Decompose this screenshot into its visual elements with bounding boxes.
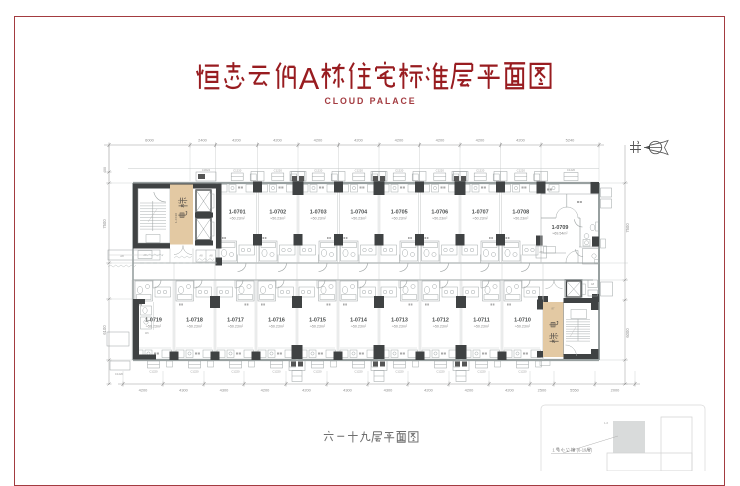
svg-text:4300: 4300 xyxy=(384,388,393,393)
svg-text:C1220: C1220 xyxy=(436,370,445,374)
svg-text:A8: A8 xyxy=(539,250,543,254)
svg-text:1-0717: 1-0717 xyxy=(227,318,244,324)
svg-text:7500: 7500 xyxy=(625,223,630,233)
svg-text:5550: 5550 xyxy=(570,388,579,393)
svg-text:≈50.23m²: ≈50.23m² xyxy=(351,217,367,221)
svg-text:C1220: C1220 xyxy=(190,370,199,374)
svg-text:C1220: C1220 xyxy=(274,169,283,173)
svg-text:4200: 4200 xyxy=(516,138,525,143)
svg-text:4200: 4200 xyxy=(261,388,270,393)
svg-text:C1220: C1220 xyxy=(395,169,404,173)
svg-text:≈50.23m²: ≈50.23m² xyxy=(230,217,246,221)
svg-text:1: 1 xyxy=(552,448,555,453)
svg-text:C1220: C1220 xyxy=(314,169,323,173)
svg-text:2000: 2000 xyxy=(611,388,620,393)
svg-text:4200: 4200 xyxy=(476,138,485,143)
svg-text:A8: A8 xyxy=(199,254,203,258)
svg-text:6000: 6000 xyxy=(145,138,154,143)
svg-text:≈50.23m²: ≈50.23m² xyxy=(310,325,326,329)
svg-text:C1220: C1220 xyxy=(517,169,526,173)
svg-text:≈50.23m²: ≈50.23m² xyxy=(270,217,286,221)
svg-text:≈50.23m²: ≈50.23m² xyxy=(473,217,489,221)
svg-text:C1220: C1220 xyxy=(354,370,363,374)
svg-text:≈50.23m²: ≈50.23m² xyxy=(187,325,203,329)
svg-text:400: 400 xyxy=(103,167,107,173)
svg-text:4300: 4300 xyxy=(343,388,352,393)
svg-text:≈50.23m²: ≈50.23m² xyxy=(351,325,367,329)
svg-text:≈69.54m²: ≈69.54m² xyxy=(552,232,568,236)
svg-text:2400: 2400 xyxy=(198,138,207,143)
svg-text:C3024: C3024 xyxy=(202,168,211,172)
svg-text:): ) xyxy=(591,448,593,453)
svg-text:A8: A8 xyxy=(209,254,213,258)
svg-text:≈50.23m²: ≈50.23m² xyxy=(392,325,408,329)
svg-text:4200: 4200 xyxy=(302,388,311,393)
svg-text:1-0716: 1-0716 xyxy=(268,318,285,324)
svg-text:1-XX10: 1-XX10 xyxy=(174,213,178,223)
svg-text:A8: A8 xyxy=(120,254,124,258)
svg-text:4300: 4300 xyxy=(220,388,229,393)
svg-text:C1220: C1220 xyxy=(149,370,158,374)
svg-text:4200: 4200 xyxy=(505,388,514,393)
svg-text:C1220: C1220 xyxy=(436,169,445,173)
svg-text:1-0707: 1-0707 xyxy=(472,210,489,216)
svg-text:7500: 7500 xyxy=(102,219,107,229)
svg-text:C1220: C1220 xyxy=(518,370,527,374)
svg-text:≈50.23m²: ≈50.23m² xyxy=(432,217,448,221)
svg-text:WC: WC xyxy=(145,332,149,335)
svg-text:≈50.23m²: ≈50.23m² xyxy=(269,325,285,329)
svg-text:1-0715: 1-0715 xyxy=(309,318,326,324)
svg-text:1-0711: 1-0711 xyxy=(473,318,490,324)
svg-text:1-0712: 1-0712 xyxy=(432,318,449,324)
svg-text:C1220: C1220 xyxy=(567,168,576,172)
svg-text:≈50.23m²: ≈50.23m² xyxy=(146,325,162,329)
svg-text:C1220: C1220 xyxy=(313,370,322,374)
svg-text:C1220: C1220 xyxy=(355,169,364,173)
svg-text:C1220: C1220 xyxy=(477,370,486,374)
svg-text:1-0710: 1-0710 xyxy=(514,318,531,324)
svg-text:4200: 4200 xyxy=(436,138,445,143)
svg-text:A: A xyxy=(299,62,320,96)
svg-text:1-0702: 1-0702 xyxy=(269,210,286,216)
svg-text:4200: 4200 xyxy=(139,388,148,393)
svg-text:4200: 4200 xyxy=(273,138,282,143)
svg-text:1-0713: 1-0713 xyxy=(391,318,408,324)
svg-text:C1220: C1220 xyxy=(231,370,240,374)
svg-text:1-0714: 1-0714 xyxy=(350,318,367,324)
svg-text:≈50.23m²: ≈50.23m² xyxy=(228,325,244,329)
svg-text:≈50.23m²: ≈50.23m² xyxy=(311,217,327,221)
svg-text:1-0703: 1-0703 xyxy=(310,210,327,216)
svg-text:C1220: C1220 xyxy=(476,169,485,173)
svg-text:C1220: C1220 xyxy=(395,370,404,374)
svg-text:6000: 6000 xyxy=(625,328,630,338)
svg-text:1-0705: 1-0705 xyxy=(391,210,408,216)
svg-text:≈50.23m²: ≈50.23m² xyxy=(433,325,449,329)
svg-text:4200: 4200 xyxy=(465,388,474,393)
svg-text:1-0706: 1-0706 xyxy=(431,210,448,216)
svg-text:1-0701: 1-0701 xyxy=(229,210,246,216)
svg-text:(6-19: (6-19 xyxy=(577,448,587,453)
svg-text:C1220: C1220 xyxy=(115,372,124,376)
svg-text:6100: 6100 xyxy=(102,325,107,335)
svg-text:1-6: 1-6 xyxy=(604,421,609,425)
svg-text:1-0708: 1-0708 xyxy=(512,210,529,216)
svg-text:2500: 2500 xyxy=(538,388,547,393)
svg-text:4200: 4200 xyxy=(424,388,433,393)
svg-text:4300: 4300 xyxy=(179,388,188,393)
svg-text:≈50.23m²: ≈50.23m² xyxy=(392,217,408,221)
svg-text:≈50.23m²: ≈50.23m² xyxy=(474,325,490,329)
svg-text:4200: 4200 xyxy=(395,138,404,143)
svg-text:4200: 4200 xyxy=(354,138,363,143)
svg-text:1-0709: 1-0709 xyxy=(552,225,569,231)
svg-text:5240: 5240 xyxy=(566,138,575,143)
svg-text:C1220: C1220 xyxy=(233,169,242,173)
svg-text:4200: 4200 xyxy=(232,138,241,143)
svg-text:C1220: C1220 xyxy=(272,370,281,374)
svg-text:4200: 4200 xyxy=(314,138,323,143)
svg-text:1-0718: 1-0718 xyxy=(186,318,203,324)
svg-text:1-0704: 1-0704 xyxy=(350,210,367,216)
svg-text:≈50.23m²: ≈50.23m² xyxy=(515,325,531,329)
svg-text:A8: A8 xyxy=(591,282,595,286)
svg-text:CLOUD PALACE: CLOUD PALACE xyxy=(324,96,416,106)
svg-text:≈50.23m²: ≈50.23m² xyxy=(513,217,529,221)
